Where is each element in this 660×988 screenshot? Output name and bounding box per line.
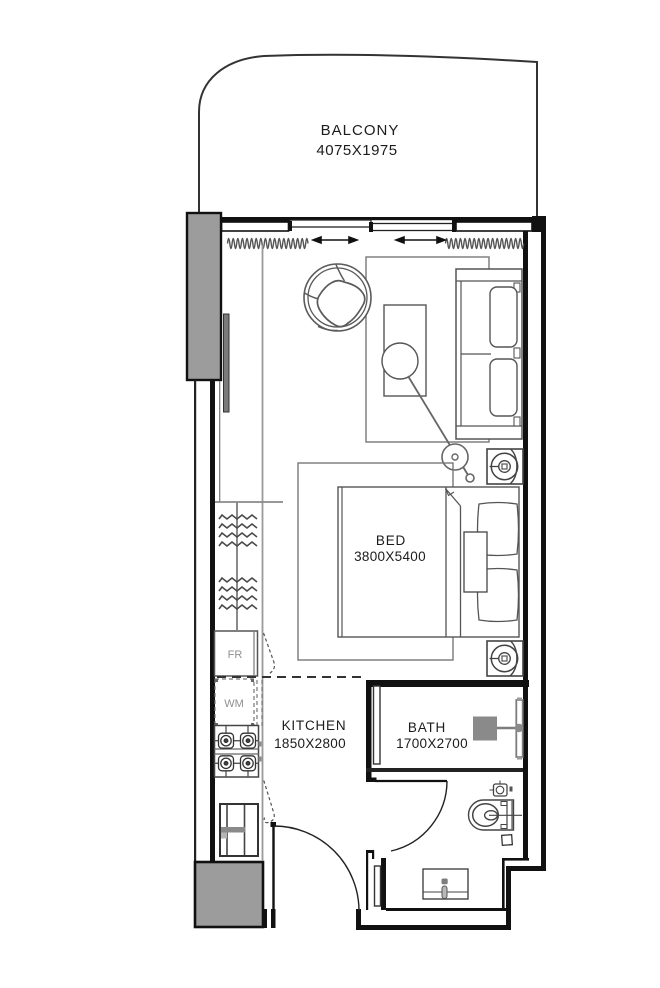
svg-text:KITCHEN: KITCHEN <box>282 718 347 733</box>
svg-text:BATH: BATH <box>408 720 446 735</box>
svg-text:1700X2700: 1700X2700 <box>396 736 468 751</box>
svg-text:BALCONY: BALCONY <box>321 122 400 139</box>
svg-text:FR: FR <box>228 649 243 661</box>
svg-text:1850X2800: 1850X2800 <box>274 736 346 751</box>
svg-text:WM: WM <box>224 698 244 710</box>
svg-text:3800X5400: 3800X5400 <box>354 549 426 564</box>
svg-text:BED: BED <box>376 533 406 548</box>
svg-text:4075X1975: 4075X1975 <box>316 142 397 159</box>
